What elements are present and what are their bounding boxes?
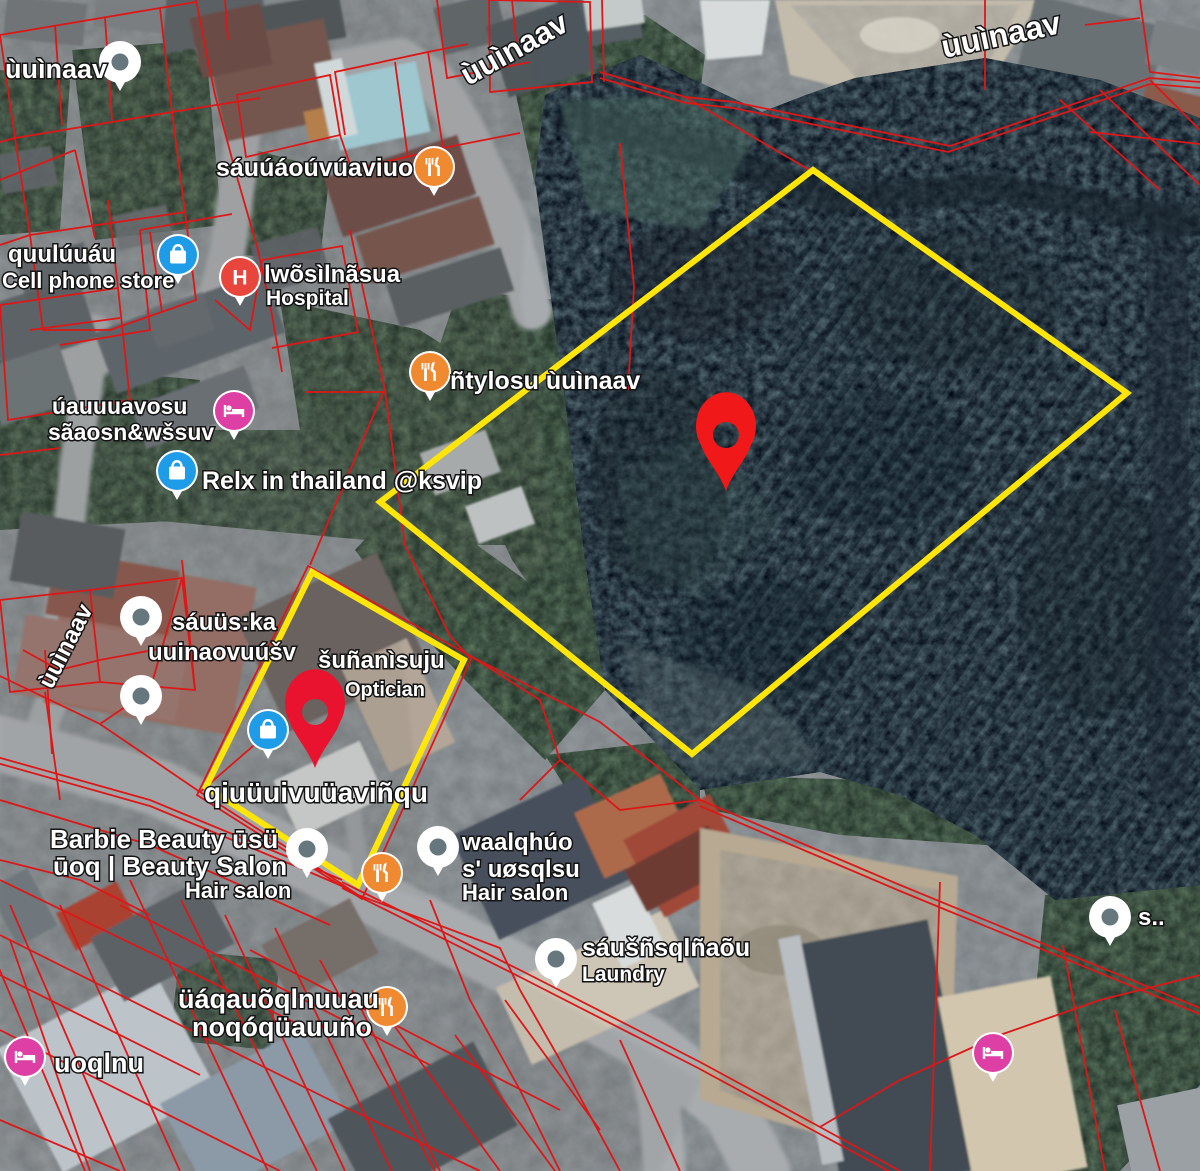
svg-text:uoqlnu: uoqlnu <box>54 1048 144 1078</box>
svg-text:šuñanìsuju: šuñanìsuju <box>318 647 445 674</box>
svg-text:qiuüuivuüaviñqu: qiuüuivuüaviñqu <box>204 777 428 808</box>
svg-text:noqóqüauuño: noqóqüauuño <box>192 1012 372 1042</box>
svg-text:waalqhúo: waalqhúo <box>461 829 573 856</box>
svg-text:Hair salon: Hair salon <box>185 878 291 903</box>
svg-text:Laundry: Laundry <box>582 963 665 986</box>
svg-text:ùuìnaav: ùuìnaav <box>5 54 107 84</box>
svg-text:s' uøsqlsu: s' uøsqlsu <box>462 856 580 883</box>
svg-text:üáqauõqlnuuau: üáqauõqlnuuau <box>178 984 379 1014</box>
svg-text:sáuúáoúvúaviuo: sáuúáoúvúaviuo <box>216 154 413 182</box>
svg-text:lwõsìlnãsua: lwõsìlnãsua <box>264 261 401 288</box>
svg-text:sáuüs:ka: sáuüs:ka <box>172 609 277 636</box>
svg-text:s..: s.. <box>1138 904 1165 931</box>
svg-text:Relx in thailand @ksvip: Relx in thailand @ksvip <box>202 467 482 495</box>
svg-text:Cell phone store: Cell phone store <box>2 268 174 293</box>
svg-text:quulúuáu: quulúuáu <box>8 241 116 268</box>
svg-text:sãaosn&wšsuv: sãaosn&wšsuv <box>48 419 214 445</box>
svg-text:Hospital: Hospital <box>266 287 349 310</box>
svg-text:uuinaovuúšv: uuinaovuúšv <box>148 639 297 666</box>
svg-text:Hair salon: Hair salon <box>462 880 568 905</box>
svg-text:ūoq | Beauty Salon: ūoq | Beauty Salon <box>53 851 287 881</box>
svg-text:sáušñsqlñaõu: sáušñsqlñaõu <box>582 934 750 962</box>
svg-text:úauuuavosu: úauuuavosu <box>52 393 187 419</box>
svg-text:ñtylosu ùuìnaav: ñtylosu ùuìnaav <box>450 367 640 395</box>
svg-text:Optician: Optician <box>345 679 425 701</box>
svg-text:Barbie Beauty ūsü: Barbie Beauty ūsü <box>50 824 278 854</box>
